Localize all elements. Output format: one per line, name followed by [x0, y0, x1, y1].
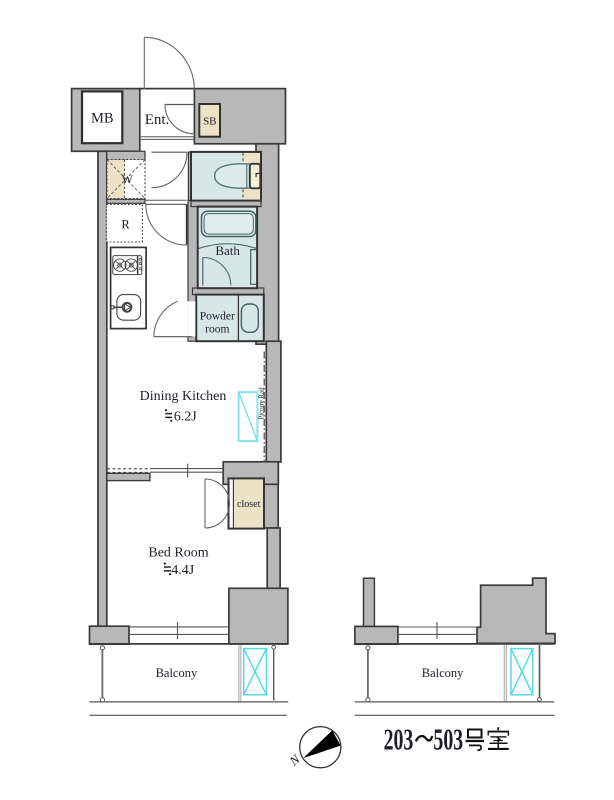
svg-text:SB: SB — [203, 115, 216, 127]
svg-text:Dining Kitchen: Dining Kitchen — [140, 389, 227, 404]
svg-text:Ent.: Ent. — [145, 112, 170, 128]
svg-text:MB: MB — [91, 111, 114, 127]
svg-text:R: R — [121, 218, 130, 232]
svg-text:W: W — [122, 174, 133, 186]
svg-text:closet: closet — [237, 499, 261, 510]
svg-text:203: 203 — [384, 722, 414, 757]
svg-text:503: 503 — [433, 722, 463, 757]
svg-text:Balcony: Balcony — [422, 666, 464, 680]
svg-text:6.2J: 6.2J — [174, 409, 198, 424]
svg-text:Bath: Bath — [215, 243, 240, 258]
svg-text:Bed Room: Bed Room — [148, 546, 208, 561]
svg-text:Picture Rail: Picture Rail — [258, 387, 265, 419]
svg-text:Balcony: Balcony — [156, 666, 198, 680]
svg-text:Powder: Powder — [200, 311, 235, 323]
svg-text:4.4J: 4.4J — [171, 563, 195, 578]
svg-text:room: room — [205, 324, 229, 336]
